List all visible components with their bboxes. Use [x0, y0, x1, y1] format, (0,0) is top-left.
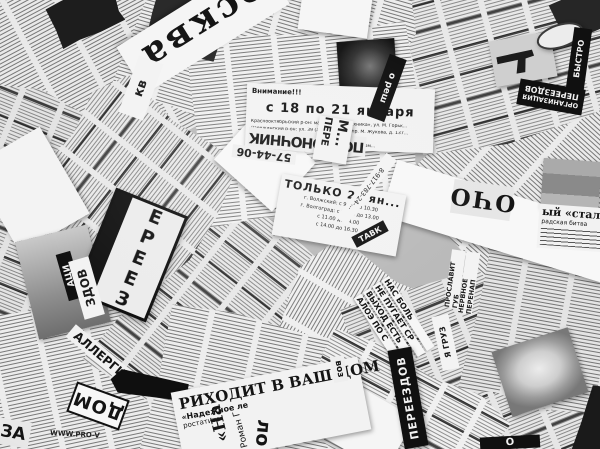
newspaper-collage-photo: осква кв Внимание!!! с 18 по 21 января К…	[0, 0, 600, 449]
stal-bodytext	[540, 227, 600, 249]
lo-text: ло	[251, 419, 275, 448]
big-lo-letters: ло	[249, 415, 278, 449]
za-text: ЗА	[0, 421, 27, 445]
voz-text: воз	[333, 360, 346, 379]
o-banner: О	[480, 434, 541, 449]
website-text: WWW.PRO-V	[50, 429, 100, 440]
kv-text: кв	[131, 77, 151, 98]
o-text: О	[505, 437, 514, 448]
ocho-text: ОЧО	[447, 182, 517, 218]
article-stal: ый «стал радская битва	[537, 204, 600, 253]
za-letters: ЗА	[0, 417, 32, 449]
